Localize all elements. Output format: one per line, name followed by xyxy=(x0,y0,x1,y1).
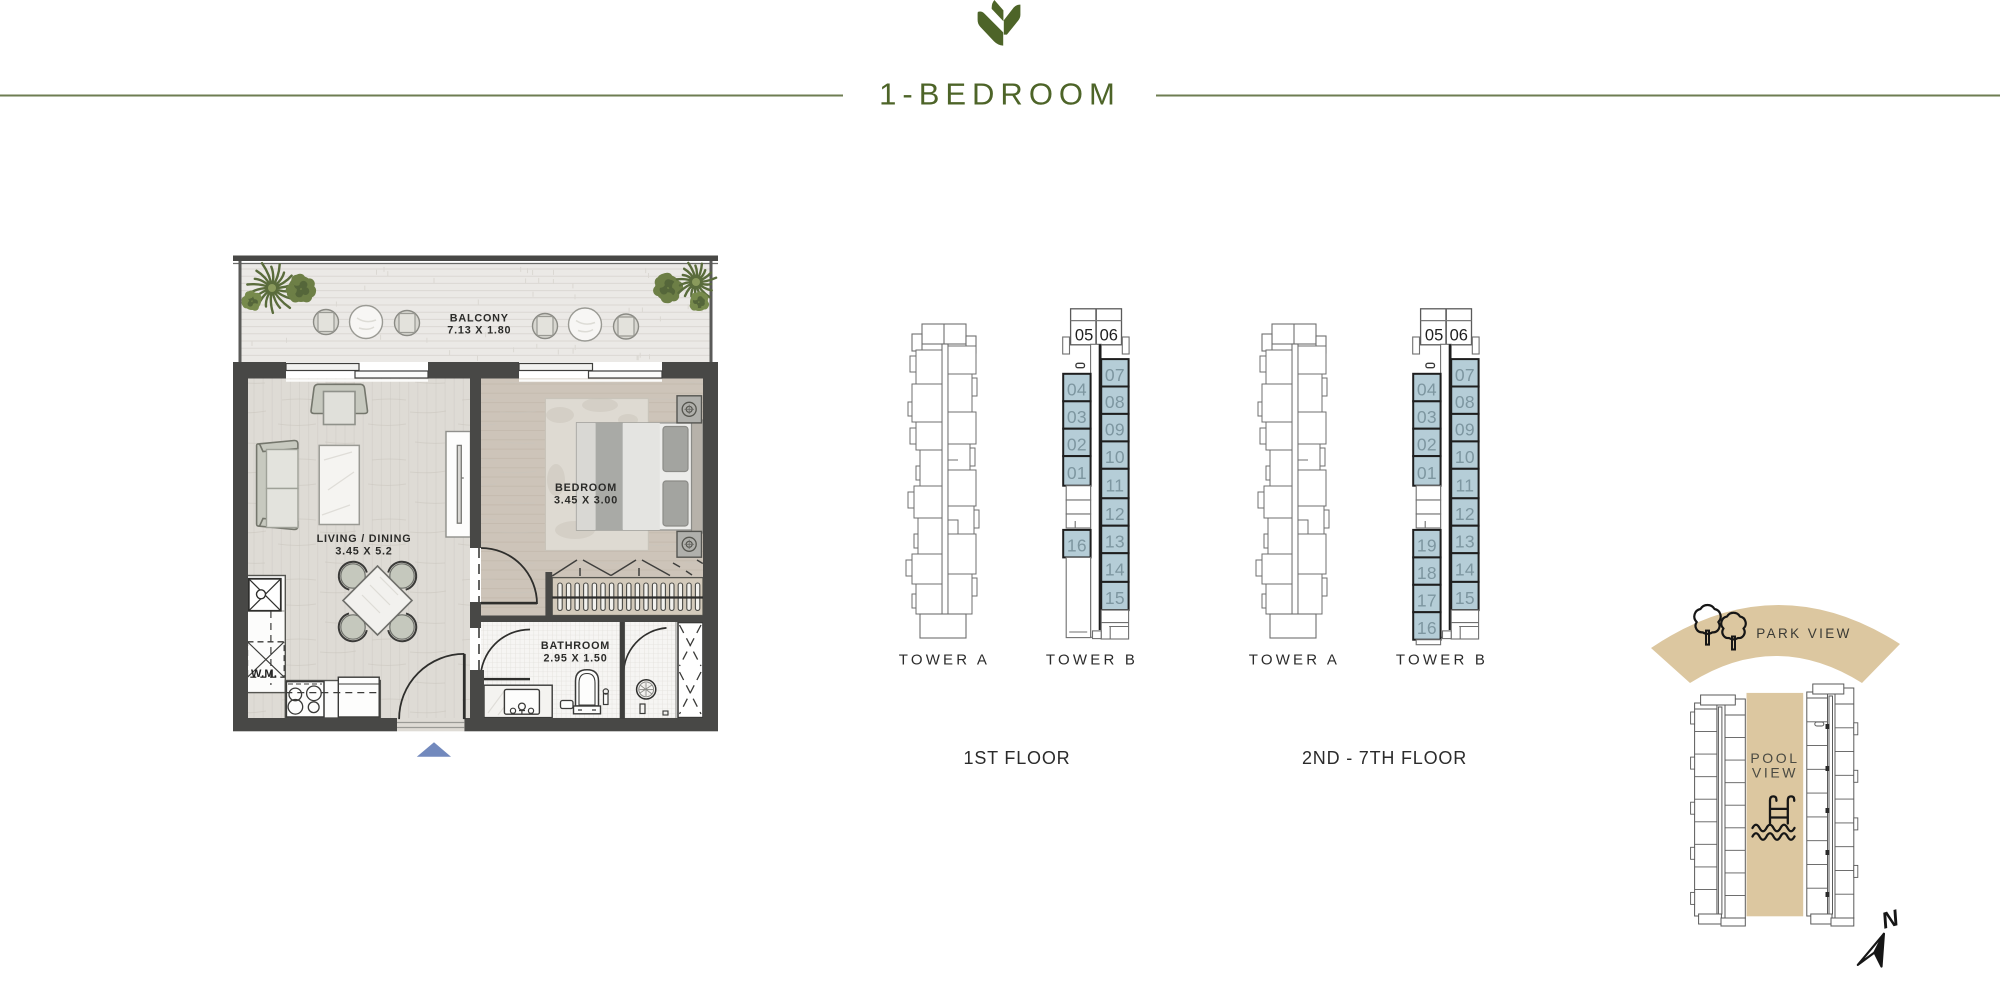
svg-text:17: 17 xyxy=(1417,591,1437,611)
svg-text:09: 09 xyxy=(1455,420,1475,440)
svg-text:02: 02 xyxy=(1417,434,1437,454)
svg-text:16: 16 xyxy=(1417,618,1437,638)
svg-text:18: 18 xyxy=(1417,563,1437,583)
svg-text:14: 14 xyxy=(1105,560,1125,580)
svg-text:11: 11 xyxy=(1456,476,1475,496)
svg-text:TOWER B: TOWER B xyxy=(1396,652,1488,669)
svg-text:07: 07 xyxy=(1105,365,1125,385)
svg-text:15: 15 xyxy=(1105,588,1125,608)
svg-text:04: 04 xyxy=(1067,380,1087,400)
svg-text:10: 10 xyxy=(1105,447,1125,467)
svg-text:BATHROOM: BATHROOM xyxy=(541,640,610,652)
svg-text:03: 03 xyxy=(1417,407,1437,427)
svg-text:03: 03 xyxy=(1067,407,1087,427)
svg-text:15: 15 xyxy=(1455,588,1475,608)
svg-text:13: 13 xyxy=(1105,532,1125,552)
svg-text:VIEW: VIEW xyxy=(1752,765,1798,781)
svg-text:TOWER A: TOWER A xyxy=(899,652,990,669)
svg-text:19: 19 xyxy=(1417,536,1437,556)
svg-text:14: 14 xyxy=(1455,560,1475,580)
svg-text:02: 02 xyxy=(1067,434,1087,454)
svg-text:09: 09 xyxy=(1105,420,1125,440)
svg-text:1ST FLOOR: 1ST FLOOR xyxy=(964,748,1071,768)
svg-text:01: 01 xyxy=(1417,463,1437,483)
svg-text:13: 13 xyxy=(1455,532,1475,552)
svg-text:10: 10 xyxy=(1455,447,1475,467)
svg-text:3.45 X 3.00: 3.45 X 3.00 xyxy=(554,495,618,507)
svg-text:11: 11 xyxy=(1106,476,1125,496)
svg-text:12: 12 xyxy=(1105,504,1125,524)
svg-text:BALCONY: BALCONY xyxy=(450,313,509,325)
svg-text:2ND - 7TH FLOOR: 2ND - 7TH FLOOR xyxy=(1302,748,1467,768)
svg-text:PARK VIEW: PARK VIEW xyxy=(1756,626,1852,641)
svg-text:BEDROOM: BEDROOM xyxy=(555,482,617,494)
svg-text:1-BEDROOM: 1-BEDROOM xyxy=(879,77,1121,112)
svg-text:04: 04 xyxy=(1417,380,1437,400)
svg-text:05: 05 xyxy=(1425,327,1443,345)
svg-text:05: 05 xyxy=(1075,327,1093,345)
svg-text:16: 16 xyxy=(1067,536,1087,556)
svg-text:07: 07 xyxy=(1455,365,1475,385)
svg-text:08: 08 xyxy=(1105,392,1125,412)
svg-text:06: 06 xyxy=(1100,327,1118,345)
svg-text:TOWER A: TOWER A xyxy=(1249,652,1340,669)
svg-text:TOWER B: TOWER B xyxy=(1046,652,1138,669)
svg-text:3.45 X 5.2: 3.45 X 5.2 xyxy=(335,546,392,558)
svg-text:12: 12 xyxy=(1455,504,1475,524)
svg-text:7.13 X 1.80: 7.13 X 1.80 xyxy=(447,325,511,337)
svg-text:06: 06 xyxy=(1450,327,1468,345)
svg-text:2.95 X 1.50: 2.95 X 1.50 xyxy=(543,652,607,664)
svg-text:LIVING / DINING: LIVING / DINING xyxy=(317,533,412,545)
svg-text:08: 08 xyxy=(1455,392,1475,412)
svg-text:01: 01 xyxy=(1067,463,1087,483)
svg-text:W.M.: W.M. xyxy=(251,668,277,680)
